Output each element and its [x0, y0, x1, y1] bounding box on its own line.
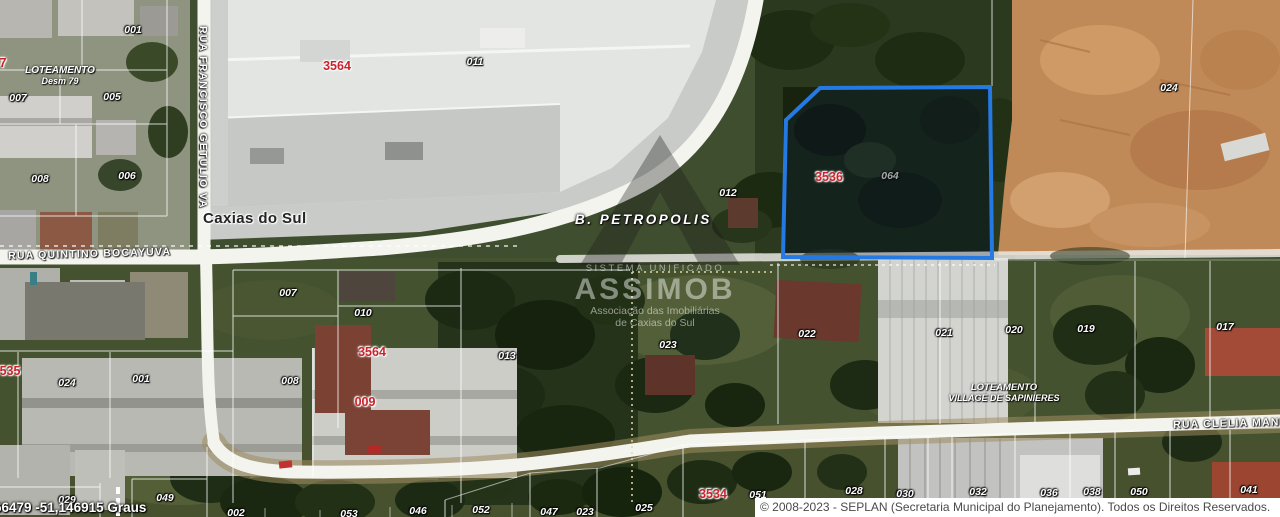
block-number-label[interactable]: 3564 [323, 59, 351, 73]
parcel-label[interactable]: 006 [118, 170, 136, 182]
copyright-bar: © 2008-2023 - SEPLAN (Secretaria Municip… [755, 498, 1280, 517]
parcel-label[interactable]: 011 [467, 56, 484, 68]
parcel-label[interactable]: 002 [227, 507, 245, 517]
parcel-label[interactable]: 013 [498, 350, 516, 362]
street-label-quintino-bocayuva: RUA QUINTINO BOCAYUVA [8, 246, 171, 262]
coordinates-readout: 66479 -51,146915 Graus [0, 500, 146, 515]
parcel-label[interactable]: 024 [58, 377, 76, 389]
block-number-label[interactable]: 535 [0, 364, 20, 378]
parcel-label[interactable]: 012 [719, 187, 737, 199]
parcel-label[interactable]: 017 [1216, 321, 1234, 333]
map-canvas[interactable]: SISTEMA UNIFICADO ASSIMOB Associação das… [0, 0, 1280, 517]
block-number-label[interactable]: 3534 [699, 487, 727, 501]
parcel-label[interactable]: 028 [845, 485, 863, 497]
area-line: LOTEAMENTO [25, 65, 95, 76]
street-label-clelia-manf: RUA CLELIA MANF [1173, 416, 1280, 431]
parcel-label[interactable]: 032 [969, 486, 987, 498]
parcel-label[interactable]: 052 [472, 504, 490, 516]
street-label-francisco-getulio: RUA FRANCISCO GETULIO VA [197, 26, 209, 209]
watermark-line4: de Caxias do Sul [574, 317, 735, 329]
parcel-label[interactable]: 047 [540, 506, 558, 517]
parcel-label[interactable]: 019 [1077, 323, 1095, 335]
parcel-label[interactable]: 007 [279, 287, 297, 299]
watermark: SISTEMA UNIFICADO ASSIMOB Associação das… [574, 263, 735, 329]
parcel-label[interactable]: 022 [798, 328, 816, 340]
parcel-label[interactable]: 007 [9, 92, 27, 104]
city-label: Caxias do Sul [203, 210, 307, 227]
parcel-label[interactable]: 049 [156, 492, 174, 504]
parcel-label[interactable]: 041 [1240, 484, 1258, 496]
parcel-label[interactable]: 053 [340, 508, 358, 517]
parcel-label[interactable]: 021 [935, 327, 953, 339]
block-number-label[interactable]: 009 [355, 395, 376, 409]
watermark-line3: Associação das Imobiliárias [574, 305, 735, 317]
parcel-label[interactable]: 010 [354, 307, 372, 319]
parcel-label[interactable]: 005 [103, 91, 121, 103]
parcel-label[interactable]: 050 [1130, 486, 1148, 498]
parcel-label[interactable]: 046 [409, 505, 427, 517]
area-label-loteamento-desm: LOTEAMENTO Desm 79 [25, 65, 95, 87]
area-line: Desm 79 [25, 76, 95, 87]
parcel-label[interactable]: 023 [576, 506, 594, 517]
area-label-village-sapinieres: LOTEAMENTO VILLAGE DE SAPINIERES [948, 382, 1059, 404]
neighborhood-label: B. PETROPOLIS [575, 212, 712, 227]
parcel-label[interactable]: 008 [31, 173, 49, 185]
block-number-label[interactable]: 3564 [358, 345, 386, 359]
parcel-label[interactable]: 038 [1083, 486, 1101, 498]
parcel-label[interactable]: 064 [881, 170, 899, 182]
parcel-label[interactable]: 001 [132, 373, 150, 385]
parcel-label[interactable]: 001 [124, 24, 142, 36]
parcel-label[interactable]: 008 [281, 375, 299, 387]
block-number-label[interactable]: 7 [0, 56, 6, 70]
area-line: LOTEAMENTO [948, 382, 1059, 393]
watermark-brand: ASSIMOB [574, 274, 735, 305]
parcel-label[interactable]: 020 [1005, 324, 1023, 336]
parcel-label[interactable]: 025 [635, 502, 653, 514]
block-number-label[interactable]: 3536 [815, 170, 843, 184]
parcel-label[interactable]: 024 [1160, 82, 1178, 94]
area-line: VILLAGE DE SAPINIERES [948, 393, 1059, 404]
parcel-label[interactable]: 023 [659, 339, 677, 351]
